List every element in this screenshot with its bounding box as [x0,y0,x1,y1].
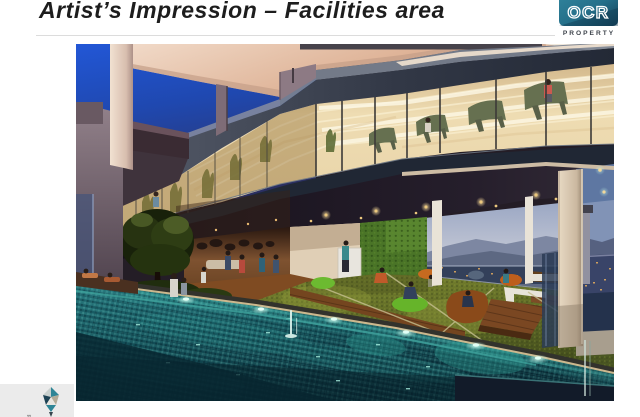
svg-text:OCR: OCR [568,3,610,22]
